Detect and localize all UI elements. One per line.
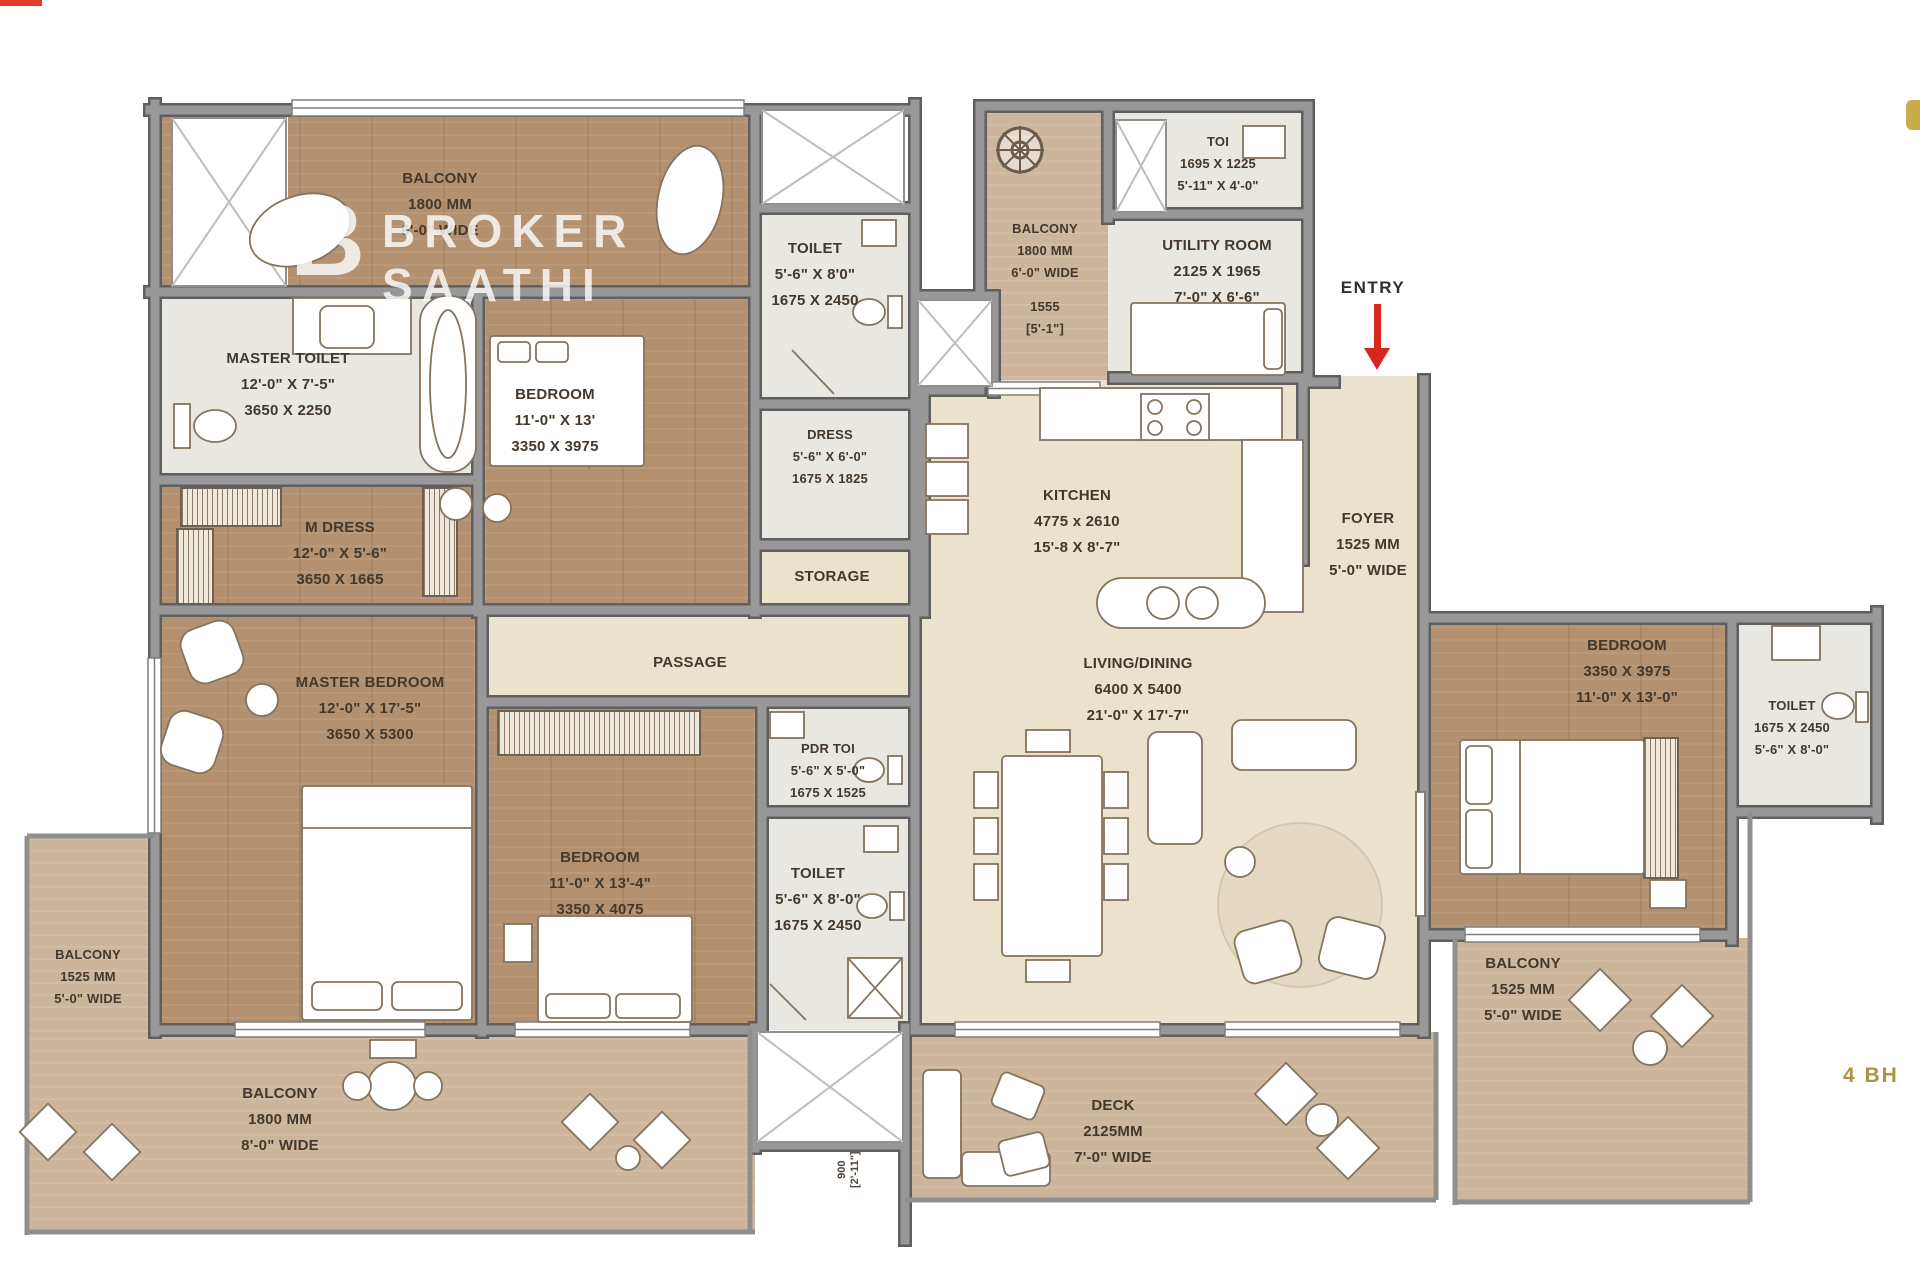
wardrobe-bedroom-mid <box>497 710 701 756</box>
dim-label-balcony-top-mid: 1555 [5'-1"] <box>1026 296 1064 340</box>
room-label-toilet-right: TOILET 1675 X 2450 5'-6" X 8'-0" <box>1754 695 1830 761</box>
room-label-living-dining: LIVING/DINING 6400 X 5400 21'-0" X 17'-7… <box>1083 651 1192 729</box>
room-label-bedroom-right: BEDROOM 3350 X 3975 11'-0" X 13'-0" <box>1576 633 1678 711</box>
room-label-m-dress: M DRESS 12'-0" X 5'-6" 3650 X 1665 <box>293 515 387 593</box>
red-edge-mark <box>0 0 42 6</box>
room-label-toilet-top: TOILET 5'-6" X 8'0" 1675 X 2450 <box>771 236 858 314</box>
entry-label: ENTRY <box>1341 278 1406 298</box>
room-label-bedroom-mid: BEDROOM 11'-0" X 13'-4" 3350 X 4075 <box>549 845 651 923</box>
room-label-passage: PASSAGE <box>653 650 727 676</box>
room-label-balcony-left: BALCONY 1525 MM 5'-0" WIDE <box>54 944 122 1010</box>
room-label-bedroom-top-left: BEDROOM 11'-0" X 13' 3350 X 3975 <box>511 382 598 460</box>
bhk-label: 4 BH <box>1843 1064 1899 1088</box>
floor-shower-top-left <box>172 116 288 288</box>
room-label-storage: STORAGE <box>794 564 869 590</box>
floor-deck <box>905 1032 1436 1200</box>
room-label-master-bedroom: MASTER BEDROOM 12'-0" X 17'-5" 3650 X 53… <box>296 670 445 748</box>
floor-plan-canvas: BALCONY 1800 MM 6'-0" WIDE MASTER TOILET… <box>0 0 1920 1280</box>
room-label-dress: DRESS 5'-6" X 6'-0" 1675 X 1825 <box>792 424 868 490</box>
room-label-master-toilet: MASTER TOILET 12'-0" X 7'-5" 3650 X 2250 <box>226 346 349 424</box>
room-label-deck: DECK 2125MM 7'-0" WIDE <box>1074 1093 1152 1171</box>
clipped-gold-logo-icon <box>1906 100 1920 130</box>
wardrobe-m-dress-left <box>176 528 214 606</box>
room-label-utility: UTILITY ROOM 2125 X 1965 7'-0" X 6'-6" <box>1162 233 1272 311</box>
floor-shaft-bottom <box>755 1030 905 1145</box>
wardrobe-m-dress-top <box>180 487 282 527</box>
room-label-balcony-right: BALCONY 1525 MM 5'-0" WIDE <box>1484 951 1562 1029</box>
room-label-balcony-top-mid: BALCONY 1800 MM 6'-0" WIDE <box>1011 218 1079 284</box>
room-label-pdr-toi: PDR TOI 5'-6" X 5'-0" 1675 X 1525 <box>790 738 866 804</box>
room-label-foyer: FOYER 1525 MM 5'-0" WIDE <box>1329 506 1407 584</box>
room-label-balcony-top-left: BALCONY 1800 MM 6'-0" WIDE <box>401 166 479 244</box>
room-label-toilet-mid: TOILET 5'-6" X 8'-0" 1675 X 2450 <box>774 861 861 939</box>
wardrobe-bedroom-right <box>1643 737 1679 879</box>
room-label-balcony-bottom: BALCONY 1800 MM 8'-0" WIDE <box>241 1081 319 1159</box>
wardrobe-m-dress-right <box>422 487 458 597</box>
entry-arrow-head-icon <box>1364 348 1390 370</box>
floor-shaft-top <box>755 106 915 208</box>
room-label-kitchen: KITCHEN 4775 x 2610 15'-8 X 8'-7" <box>1034 483 1121 561</box>
dimension-900: 900 [2'-11"] <box>836 1151 862 1188</box>
room-label-toi: TOI 1695 X 1225 5'-11" X 4'-0" <box>1177 131 1258 197</box>
entry-arrow-icon <box>1374 304 1381 350</box>
floor-balcony-bottom <box>27 1032 755 1232</box>
